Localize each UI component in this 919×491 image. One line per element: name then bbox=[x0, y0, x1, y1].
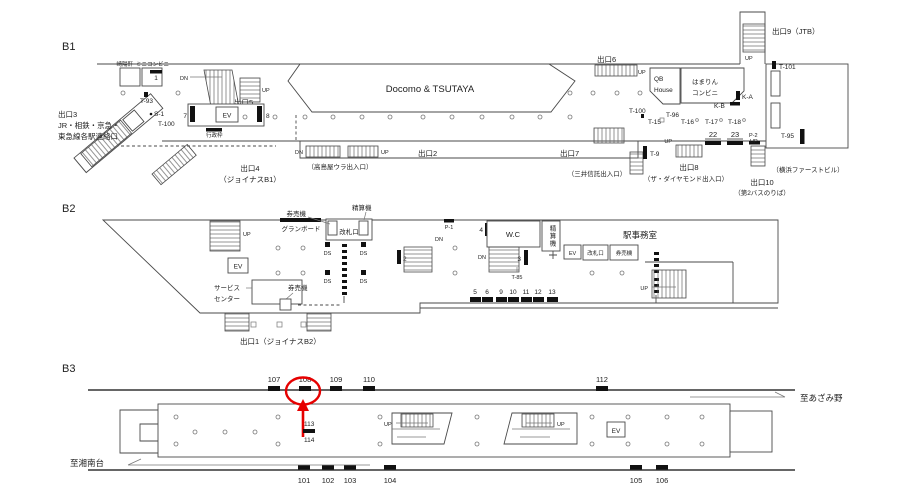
exit10-stairs bbox=[751, 146, 765, 166]
exit9-stairs bbox=[743, 24, 765, 52]
ka-slot-bar bbox=[736, 91, 740, 100]
ad-slot-105-label: 105 bbox=[630, 476, 643, 485]
ad-slot-114-label: 114 bbox=[304, 437, 315, 444]
dn-label: DN bbox=[180, 76, 188, 82]
ad-slot-1-label: 1 bbox=[154, 75, 158, 82]
up-label: UP bbox=[381, 150, 389, 156]
floor-b2: B2 UP グランボード 改札口 券売機 精算機 DS DS DS DS bbox=[62, 203, 778, 346]
ad-slot-104-label: 104 bbox=[384, 476, 397, 485]
hamarin-label2: コンビニ bbox=[692, 88, 718, 97]
service-center-room bbox=[252, 280, 302, 304]
ad-slot-106-label: 106 bbox=[656, 476, 669, 485]
s1-icon bbox=[150, 113, 153, 116]
north-gate-label: 改札口 bbox=[339, 227, 359, 236]
exit8-label: 出口8 bbox=[679, 162, 698, 172]
t95-slot-label: T-95 bbox=[781, 133, 794, 140]
up-label: UP bbox=[384, 422, 392, 428]
ad-slot-109-label: 109 bbox=[330, 375, 343, 384]
ad-slot-12-label: 12 bbox=[534, 289, 542, 296]
ticket-machine-center bbox=[280, 299, 291, 310]
t15-slot-label: T-15 bbox=[648, 119, 661, 126]
dn-label: DN bbox=[478, 255, 486, 261]
b2-stairs-up-east bbox=[652, 270, 686, 298]
b1-elevator-block: EV 7 8 行政枠 bbox=[183, 104, 270, 139]
service-center-label: サービス bbox=[214, 283, 240, 292]
station-floor-map: B1 出口3 JR・相鉄・京急・ 東急線各駅連絡口 出口4 （ジョイナスB1） bbox=[0, 0, 919, 491]
ad-slot-11-label: 11 bbox=[523, 289, 530, 296]
ds-label: DS bbox=[324, 251, 332, 257]
to-azamino-arrow bbox=[690, 392, 785, 397]
b2-slot-bars bbox=[470, 297, 558, 302]
takashimaya-stairs-up bbox=[348, 146, 378, 157]
t17-icon bbox=[720, 119, 723, 122]
ad-slot-bar-2 bbox=[397, 250, 401, 264]
fare-adjust-machine-north bbox=[359, 221, 368, 235]
floor-b1: B1 出口3 JR・相鉄・京急・ 東急線各駅連絡口 出口4 （ジョイナスB1） bbox=[58, 12, 848, 197]
ds-label: DS bbox=[324, 279, 332, 285]
exit9-label: 出口9（JTB） bbox=[772, 26, 820, 36]
ticket-machine-north-label: 券売機 bbox=[287, 209, 307, 218]
gyosei-slot-bar bbox=[206, 128, 222, 132]
level-label-b2: B2 bbox=[62, 203, 75, 215]
hamarin-label: はまりん bbox=[692, 78, 719, 86]
exit4-label: 出口4 bbox=[240, 163, 259, 173]
elevator-label: EV bbox=[612, 428, 621, 435]
floor-b3: B3 107 108 109 110 112 113 114 UP bbox=[62, 363, 843, 485]
elevator-label: EV bbox=[569, 251, 577, 257]
b2-outline bbox=[103, 220, 778, 313]
service-center-label2: センター bbox=[214, 294, 240, 303]
ad-slot-22-label: 22 bbox=[709, 130, 717, 139]
takashimaya-note: （高島屋ウラ出入口） bbox=[308, 162, 373, 171]
ad-slot-23-label: 23 bbox=[731, 130, 739, 139]
exit4-stairs bbox=[152, 144, 196, 184]
exit4-sub-label: （ジョイナスB1） bbox=[219, 175, 281, 184]
qb-house-label: QB bbox=[654, 76, 663, 83]
exit2-label: 出口2 bbox=[418, 148, 437, 158]
ad-slot-bar-7 bbox=[190, 106, 195, 122]
exit7-label: 出口7 bbox=[560, 148, 579, 158]
platform-east-extension bbox=[730, 411, 772, 452]
exit10-sub-label: （第2バスのりば） bbox=[734, 188, 790, 197]
mitsui-stairs bbox=[594, 128, 624, 143]
ad-slot-bar-113-114 bbox=[303, 429, 315, 433]
grand-board-bar bbox=[280, 218, 321, 222]
grand-board-label: グランボード bbox=[282, 224, 321, 233]
to-shonandai-arrow bbox=[128, 459, 370, 465]
east-gate-label: 改札口 bbox=[587, 249, 604, 257]
ds-label: DS bbox=[360, 251, 368, 257]
fare-adjust-room-label: 精算機 bbox=[546, 225, 556, 248]
t100-east-slot-label: T-100 bbox=[629, 108, 646, 115]
level-label-b1: B1 bbox=[62, 41, 75, 53]
docomo-tsutaya-label: Docomo & TSUTAYA bbox=[386, 84, 475, 95]
ad-slot-bar-3 bbox=[524, 250, 528, 265]
p1-slot-label: P-1 bbox=[445, 225, 454, 231]
kiyoken-shop-label: 崎陽軒 bbox=[116, 60, 133, 68]
up-label: UP bbox=[750, 139, 758, 145]
kb-slot-bar bbox=[730, 102, 740, 106]
mini-convenience-label: ミニコンビニ bbox=[136, 60, 169, 68]
up-label: UP bbox=[664, 139, 672, 145]
ad-slot-3-label: 3 bbox=[517, 256, 521, 263]
p1-slot-bar bbox=[444, 219, 454, 223]
ka-slot-label: K-A bbox=[742, 94, 754, 101]
t100-west-slot-label: T-100 bbox=[158, 121, 175, 128]
up-label: UP bbox=[262, 88, 270, 94]
ticket-machine-north bbox=[328, 221, 337, 235]
level-label-b3: B3 bbox=[62, 363, 75, 375]
exit3-lines-label: JR・相鉄・京急・ bbox=[58, 120, 120, 130]
t100-east-icon bbox=[641, 114, 644, 118]
t95-slot-bar bbox=[800, 129, 805, 144]
t101-slot-bar bbox=[772, 61, 776, 69]
ad-slot-bar-1 bbox=[150, 70, 162, 74]
station-office-label: 駅事務室 bbox=[623, 230, 658, 240]
t85-slot-label: T-85 bbox=[511, 275, 522, 281]
takashimaya-stairs-dn bbox=[306, 146, 340, 157]
first-building-note: （横浜ファーストビル） bbox=[772, 165, 843, 174]
to-shonandai-label: 至湘南台 bbox=[70, 458, 104, 468]
exit1-stairs-east bbox=[307, 313, 331, 331]
b2-stairs-dn-2 bbox=[489, 247, 519, 272]
ad-slot-bar-8 bbox=[257, 106, 262, 122]
t93-slot-label: T-93 bbox=[140, 98, 153, 105]
exit3-lines-label2: 東急線各駅連絡口 bbox=[58, 131, 118, 141]
elevator-label: EV bbox=[234, 264, 243, 271]
ad-slot-13-label: 13 bbox=[548, 289, 556, 296]
t93-icon bbox=[144, 92, 148, 97]
t17-slot-label: T-17 bbox=[705, 119, 718, 126]
t18-icon bbox=[743, 119, 746, 122]
ad-slot-10-label: 10 bbox=[509, 289, 517, 296]
b2-stairs-dn-1 bbox=[404, 247, 432, 272]
diamond-note: （ザ・ダイヤモンド出入口） bbox=[644, 174, 728, 183]
ad-slot-8-label: 8 bbox=[266, 113, 270, 120]
exit1-stairs-west bbox=[225, 313, 249, 331]
mitsui-stairs-lower bbox=[630, 152, 643, 174]
ad-slot-103-label: 103 bbox=[344, 476, 357, 485]
exit6-label: 出口6 bbox=[597, 54, 616, 64]
ad-slot-107-label: 107 bbox=[268, 375, 281, 384]
fare-adjust-north-label: 精算機 bbox=[352, 203, 372, 212]
ad-slot-101-label: 101 bbox=[298, 476, 311, 485]
up-label: UP bbox=[640, 286, 648, 292]
up-label: UP bbox=[557, 422, 565, 428]
t96-slot-label: T-96 bbox=[666, 112, 679, 119]
elevator-label: EV bbox=[223, 113, 232, 120]
dn-label: DN bbox=[295, 150, 303, 156]
ad-slot-bar-22 bbox=[705, 141, 721, 145]
wc-label: W.C bbox=[506, 230, 521, 239]
exit1-label: 出口1（ジョイナスB2） bbox=[240, 336, 321, 346]
west-ticket-gates bbox=[342, 244, 347, 303]
up-label: UP bbox=[243, 232, 251, 238]
ad-slot-102-label: 102 bbox=[322, 476, 335, 485]
exit6-stairs bbox=[595, 65, 637, 76]
to-azamino-label: 至あざみ野 bbox=[800, 393, 843, 403]
t9-slot-bar bbox=[643, 146, 647, 159]
up-label: UP bbox=[745, 56, 753, 62]
map-canvas: B1 出口3 JR・相鉄・京急・ 東急線各駅連絡口 出口4 （ジョイナスB1） bbox=[0, 0, 919, 491]
t101-slot-label: T-101 bbox=[779, 64, 796, 71]
ticket-machine-center-label: 券売機 bbox=[288, 283, 308, 292]
ad-slot-bar-23 bbox=[727, 141, 743, 145]
ds-label: DS bbox=[360, 279, 368, 285]
t16-icon bbox=[696, 119, 699, 122]
ad-slot-6-label: 6 bbox=[485, 289, 489, 296]
qb-house-label2: House bbox=[654, 87, 673, 94]
platform-west-end bbox=[120, 410, 158, 453]
qb-house-area bbox=[650, 68, 680, 104]
ad-slot-5-label: 5 bbox=[473, 289, 477, 296]
t18-slot-label: T-18 bbox=[728, 119, 741, 126]
s1-slot-label: S-1 bbox=[154, 111, 165, 118]
exit3-label: 出口3 bbox=[58, 109, 77, 119]
ad-slot-110-label: 110 bbox=[363, 375, 375, 384]
b2-stairs-up-west bbox=[210, 221, 240, 251]
kb-slot-label: K-B bbox=[714, 103, 725, 110]
ad-slot-7-label: 7 bbox=[183, 113, 187, 120]
dn-label: DN bbox=[435, 237, 443, 243]
exit10-label: 出口10 bbox=[750, 177, 773, 187]
ad-slot-113-label: 113 bbox=[304, 421, 315, 428]
gyosei-label: 行政枠 bbox=[206, 131, 223, 139]
ad-slot-9-label: 9 bbox=[499, 289, 503, 296]
exit8-stairs bbox=[676, 145, 702, 157]
ad-slot-112-label: 112 bbox=[596, 375, 608, 384]
b3-south-slot-bars bbox=[298, 465, 668, 470]
t9-slot-label: T-9 bbox=[650, 151, 660, 158]
mitsui-note: （三井信託出入口） bbox=[568, 169, 627, 178]
ticket-machine-east-label: 券売機 bbox=[616, 249, 633, 257]
up-label: UP bbox=[638, 70, 646, 76]
ad-slot-4-label: 4 bbox=[479, 227, 483, 234]
t16-slot-label: T-16 bbox=[681, 119, 694, 126]
